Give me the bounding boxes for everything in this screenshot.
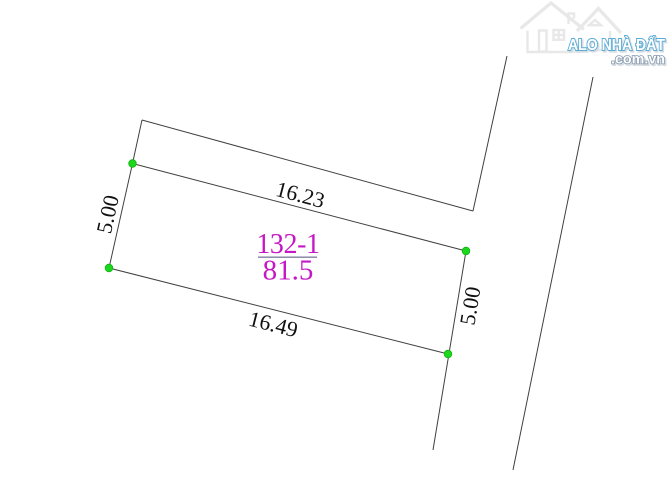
svg-text:81.5: 81.5 [263,255,314,287]
svg-text:.com.vn: .com.vn [611,51,665,67]
